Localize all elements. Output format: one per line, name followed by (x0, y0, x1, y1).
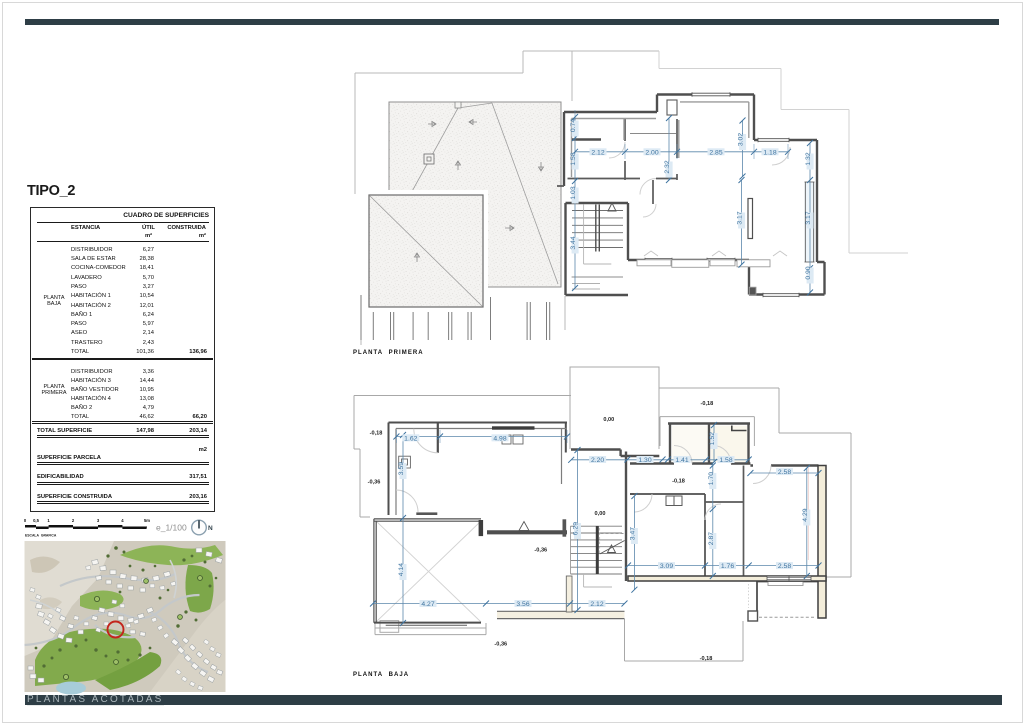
svg-text:1.03: 1.03 (570, 186, 577, 199)
svg-text:-0,18: -0,18 (700, 656, 713, 662)
svg-text:2: 2 (72, 518, 75, 523)
svg-text:-0,18: -0,18 (672, 478, 685, 484)
svg-text:-0,36: -0,36 (368, 480, 381, 486)
svg-text:2.85: 2.85 (709, 149, 722, 156)
svg-text:2.58: 2.58 (778, 563, 791, 570)
svg-text:2.58: 2.58 (778, 469, 791, 476)
svg-text:2.87: 2.87 (708, 532, 715, 545)
svg-text:1.70: 1.70 (708, 472, 715, 485)
svg-text:4.14: 4.14 (398, 563, 405, 576)
svg-text:1.58: 1.58 (570, 152, 577, 165)
svg-text:0.74: 0.74 (570, 119, 577, 132)
svg-text:3.17: 3.17 (805, 211, 812, 224)
svg-text:1.52: 1.52 (709, 432, 716, 445)
svg-text:3.47: 3.47 (629, 527, 636, 540)
svg-text:-0,18: -0,18 (701, 401, 714, 407)
svg-text:2.32: 2.32 (664, 160, 671, 173)
svg-text:2.00: 2.00 (645, 149, 658, 156)
svg-text:3.09: 3.09 (660, 563, 673, 570)
svg-text:1.62: 1.62 (404, 435, 417, 442)
svg-text:0.90: 0.90 (805, 266, 812, 279)
svg-text:N: N (208, 525, 213, 532)
svg-text:ESCALA GRAFICA: ESCALA GRAFICA (25, 534, 57, 538)
svg-text:4.29: 4.29 (802, 508, 809, 521)
svg-text:6.29: 6.29 (573, 522, 580, 535)
svg-text:0,00: 0,00 (603, 417, 614, 423)
svg-text:-0,36: -0,36 (494, 642, 507, 648)
svg-text:0,00: 0,00 (595, 511, 606, 517)
svg-text:e_1/100: e_1/100 (156, 523, 187, 533)
svg-text:1.32: 1.32 (805, 152, 812, 165)
svg-text:1.76: 1.76 (721, 563, 734, 570)
svg-text:2.20: 2.20 (591, 457, 604, 464)
svg-text:0: 0 (24, 518, 27, 523)
svg-text:1.41: 1.41 (675, 457, 688, 464)
svg-text:5m: 5m (144, 518, 150, 523)
svg-text:2.12: 2.12 (591, 149, 604, 156)
svg-text:4.27: 4.27 (421, 601, 434, 608)
svg-text:1.58: 1.58 (719, 457, 732, 464)
svg-text:1: 1 (47, 518, 50, 523)
svg-text:4: 4 (121, 518, 124, 523)
svg-text:3.56: 3.56 (516, 601, 529, 608)
svg-text:2.12: 2.12 (590, 601, 603, 608)
svg-text:3: 3 (97, 518, 100, 523)
svg-text:3.02: 3.02 (738, 133, 745, 146)
svg-text:0,5: 0,5 (33, 518, 39, 523)
svg-text:-0,36: -0,36 (534, 548, 547, 554)
svg-text:1.30: 1.30 (638, 457, 651, 464)
svg-text:3.17: 3.17 (737, 211, 744, 224)
svg-text:4.98: 4.98 (493, 435, 506, 442)
svg-text:3.44: 3.44 (570, 236, 577, 249)
svg-text:3.59: 3.59 (398, 462, 405, 475)
svg-text:1.18: 1.18 (763, 149, 776, 156)
svg-text:-0,18: -0,18 (370, 430, 383, 436)
